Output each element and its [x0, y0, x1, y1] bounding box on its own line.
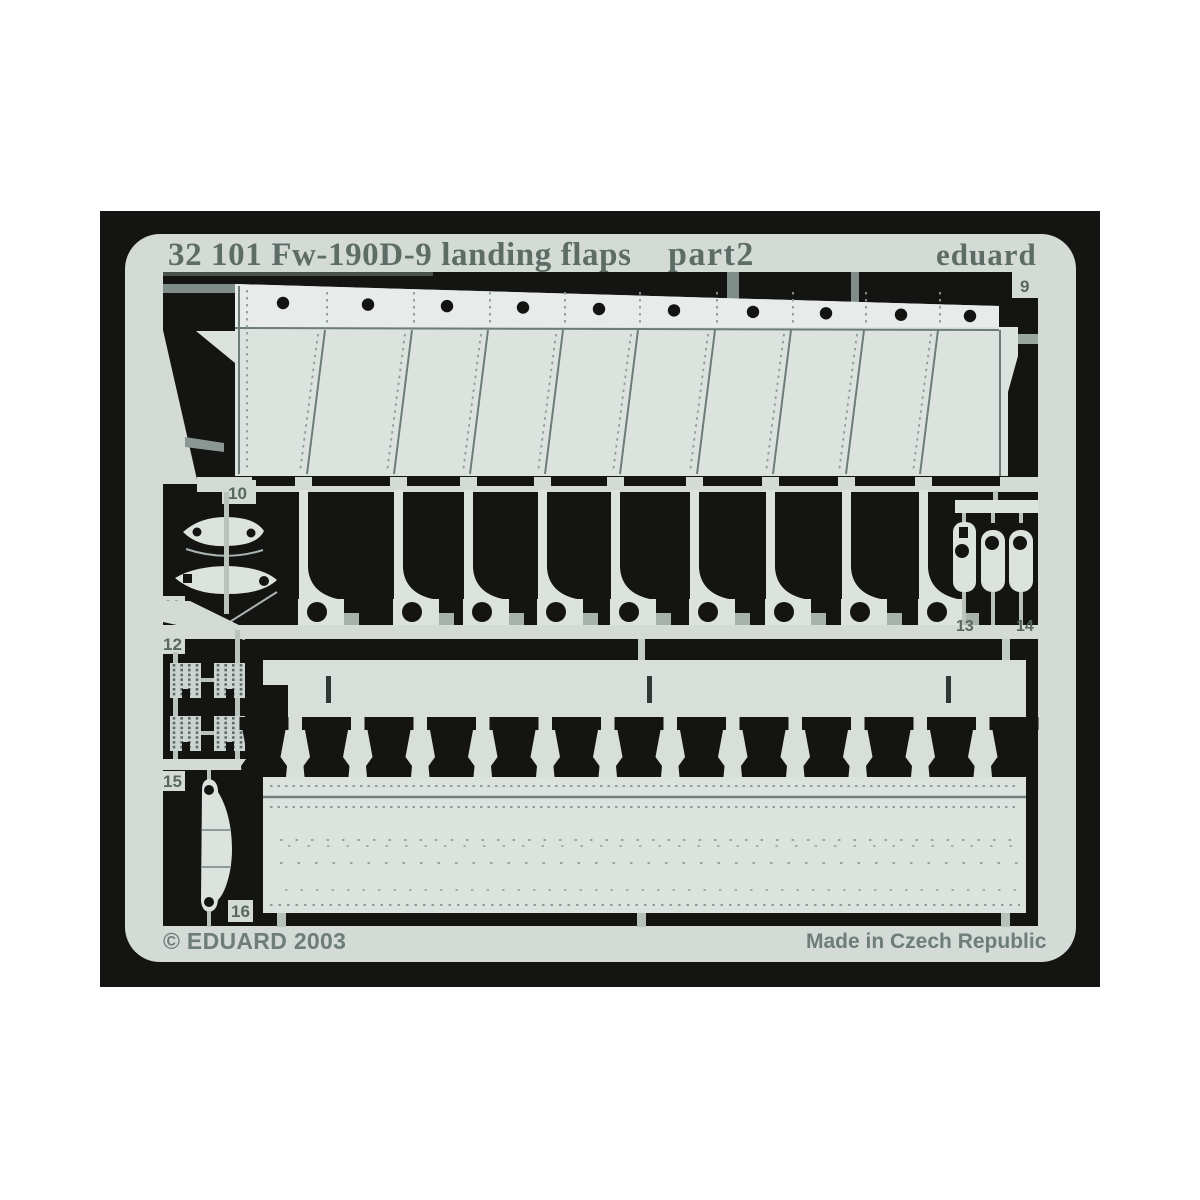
svg-text:9: 9 — [1020, 277, 1029, 296]
svg-text:eduard: eduard — [936, 237, 1037, 272]
svg-text:part2: part2 — [668, 236, 755, 273]
svg-text:© EDUARD 2003: © EDUARD 2003 — [163, 928, 346, 954]
svg-text:14: 14 — [1016, 618, 1034, 635]
svg-text:Made in Czech Republic: Made in Czech Republic — [806, 930, 1047, 953]
svg-text:10: 10 — [228, 484, 247, 503]
svg-text:12: 12 — [163, 635, 182, 654]
svg-text:32 101 Fw-190D-9 landing flap: 32 101 Fw-190D-9 landing flaps — [168, 237, 632, 273]
svg-text:15: 15 — [163, 772, 182, 791]
svg-text:16: 16 — [231, 902, 250, 921]
svg-text:13: 13 — [956, 618, 974, 635]
